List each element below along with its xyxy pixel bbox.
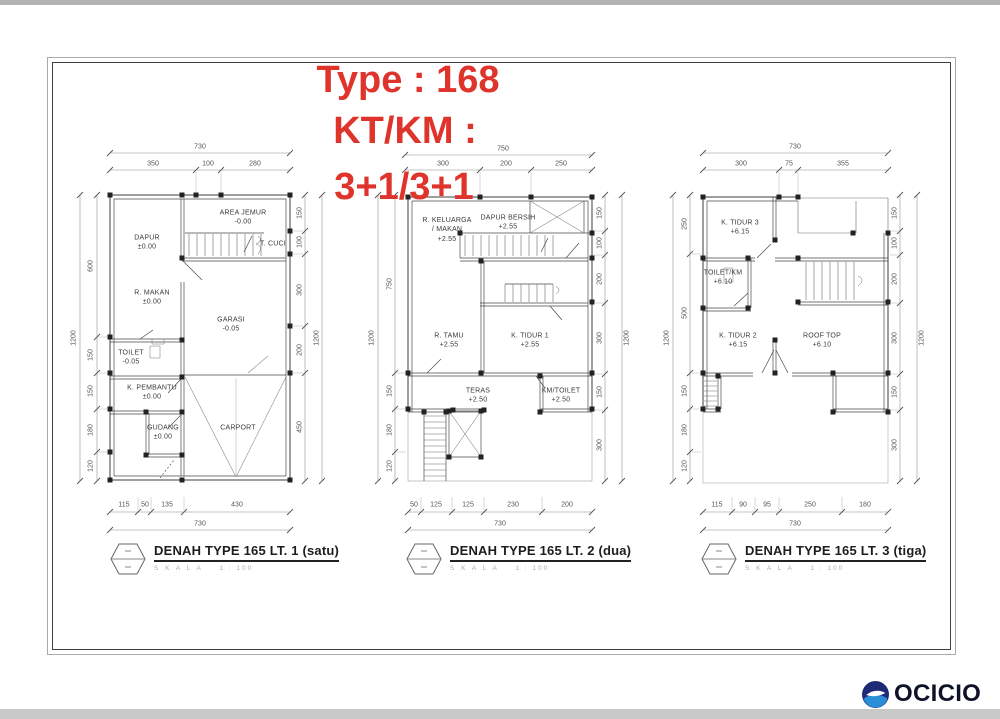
plan-2-linework bbox=[375, 152, 625, 533]
page-title-line-3: 3+1/3+1 bbox=[334, 168, 473, 206]
floor-plan-linework bbox=[0, 0, 1000, 719]
plan-1-scale: S K A L A1 : 100 bbox=[154, 565, 339, 572]
scale-value: 1 : 100 bbox=[810, 565, 844, 572]
sheet-symbol-icon bbox=[110, 543, 146, 575]
sheet-symbol-icon bbox=[406, 543, 442, 575]
scale-value: 1 : 100 bbox=[219, 565, 253, 572]
plan-1-linework bbox=[77, 150, 325, 533]
plan-2-scale: S K A L A1 : 100 bbox=[450, 565, 631, 572]
plan-1-caption-title: DENAH TYPE 165 LT. 1 (satu) bbox=[154, 543, 339, 562]
ocicio-logo: OCICIO bbox=[862, 680, 981, 708]
scale-label: S K A L A bbox=[450, 565, 499, 572]
plan-2-caption: DENAH TYPE 165 LT. 2 (dua) S K A L A1 : … bbox=[406, 543, 631, 575]
page-title-line-1: Type : 168 bbox=[316, 61, 499, 99]
ocicio-logo-icon bbox=[862, 681, 889, 708]
plan-3-scale: S K A L A1 : 100 bbox=[745, 565, 926, 572]
scale-label: S K A L A bbox=[745, 565, 794, 572]
scale-label: S K A L A bbox=[154, 565, 203, 572]
plan-3-linework bbox=[670, 150, 920, 533]
plan-2-caption-title: DENAH TYPE 165 LT. 2 (dua) bbox=[450, 543, 631, 562]
scale-value: 1 : 100 bbox=[515, 565, 549, 572]
page-title-line-2: KT/KM : bbox=[333, 112, 477, 150]
sheet-symbol-icon bbox=[701, 543, 737, 575]
plan-1-caption: DENAH TYPE 165 LT. 1 (satu) S K A L A1 :… bbox=[110, 543, 339, 575]
ocicio-logo-text: OCICIO bbox=[894, 680, 981, 708]
scanned-floor-plan-page: { "page": { "title_lines": ["Type : 168"… bbox=[0, 0, 1000, 719]
plan-3-caption-title: DENAH TYPE 165 LT. 3 (tiga) bbox=[745, 543, 926, 562]
plan-3-caption: DENAH TYPE 165 LT. 3 (tiga) S K A L A1 :… bbox=[701, 543, 926, 575]
